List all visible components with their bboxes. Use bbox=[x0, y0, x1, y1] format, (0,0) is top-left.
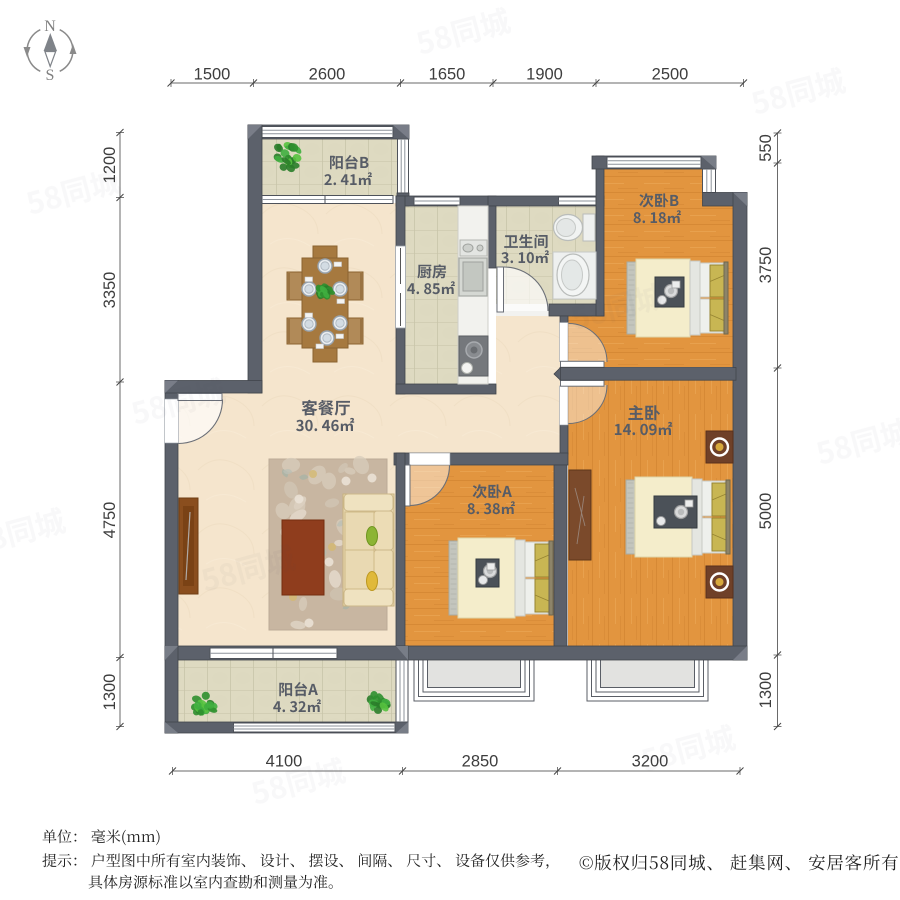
svg-text:1500: 1500 bbox=[194, 66, 231, 84]
svg-text:3350: 3350 bbox=[101, 272, 119, 309]
svg-text:4750: 4750 bbox=[101, 502, 119, 539]
svg-text:N: N bbox=[44, 18, 56, 35]
svg-text:1300: 1300 bbox=[757, 672, 775, 709]
svg-text:S: S bbox=[46, 67, 55, 84]
svg-text:1900: 1900 bbox=[526, 66, 563, 84]
svg-text:4100: 4100 bbox=[266, 753, 303, 771]
svg-text:3750: 3750 bbox=[757, 247, 775, 284]
svg-text:1650: 1650 bbox=[429, 66, 466, 84]
svg-text:2850: 2850 bbox=[462, 753, 499, 771]
svg-text:2500: 2500 bbox=[652, 66, 689, 84]
svg-text:5000: 5000 bbox=[757, 493, 775, 530]
svg-text:2600: 2600 bbox=[309, 66, 346, 84]
svg-text:1300: 1300 bbox=[101, 674, 119, 711]
svg-text:550: 550 bbox=[757, 134, 775, 162]
